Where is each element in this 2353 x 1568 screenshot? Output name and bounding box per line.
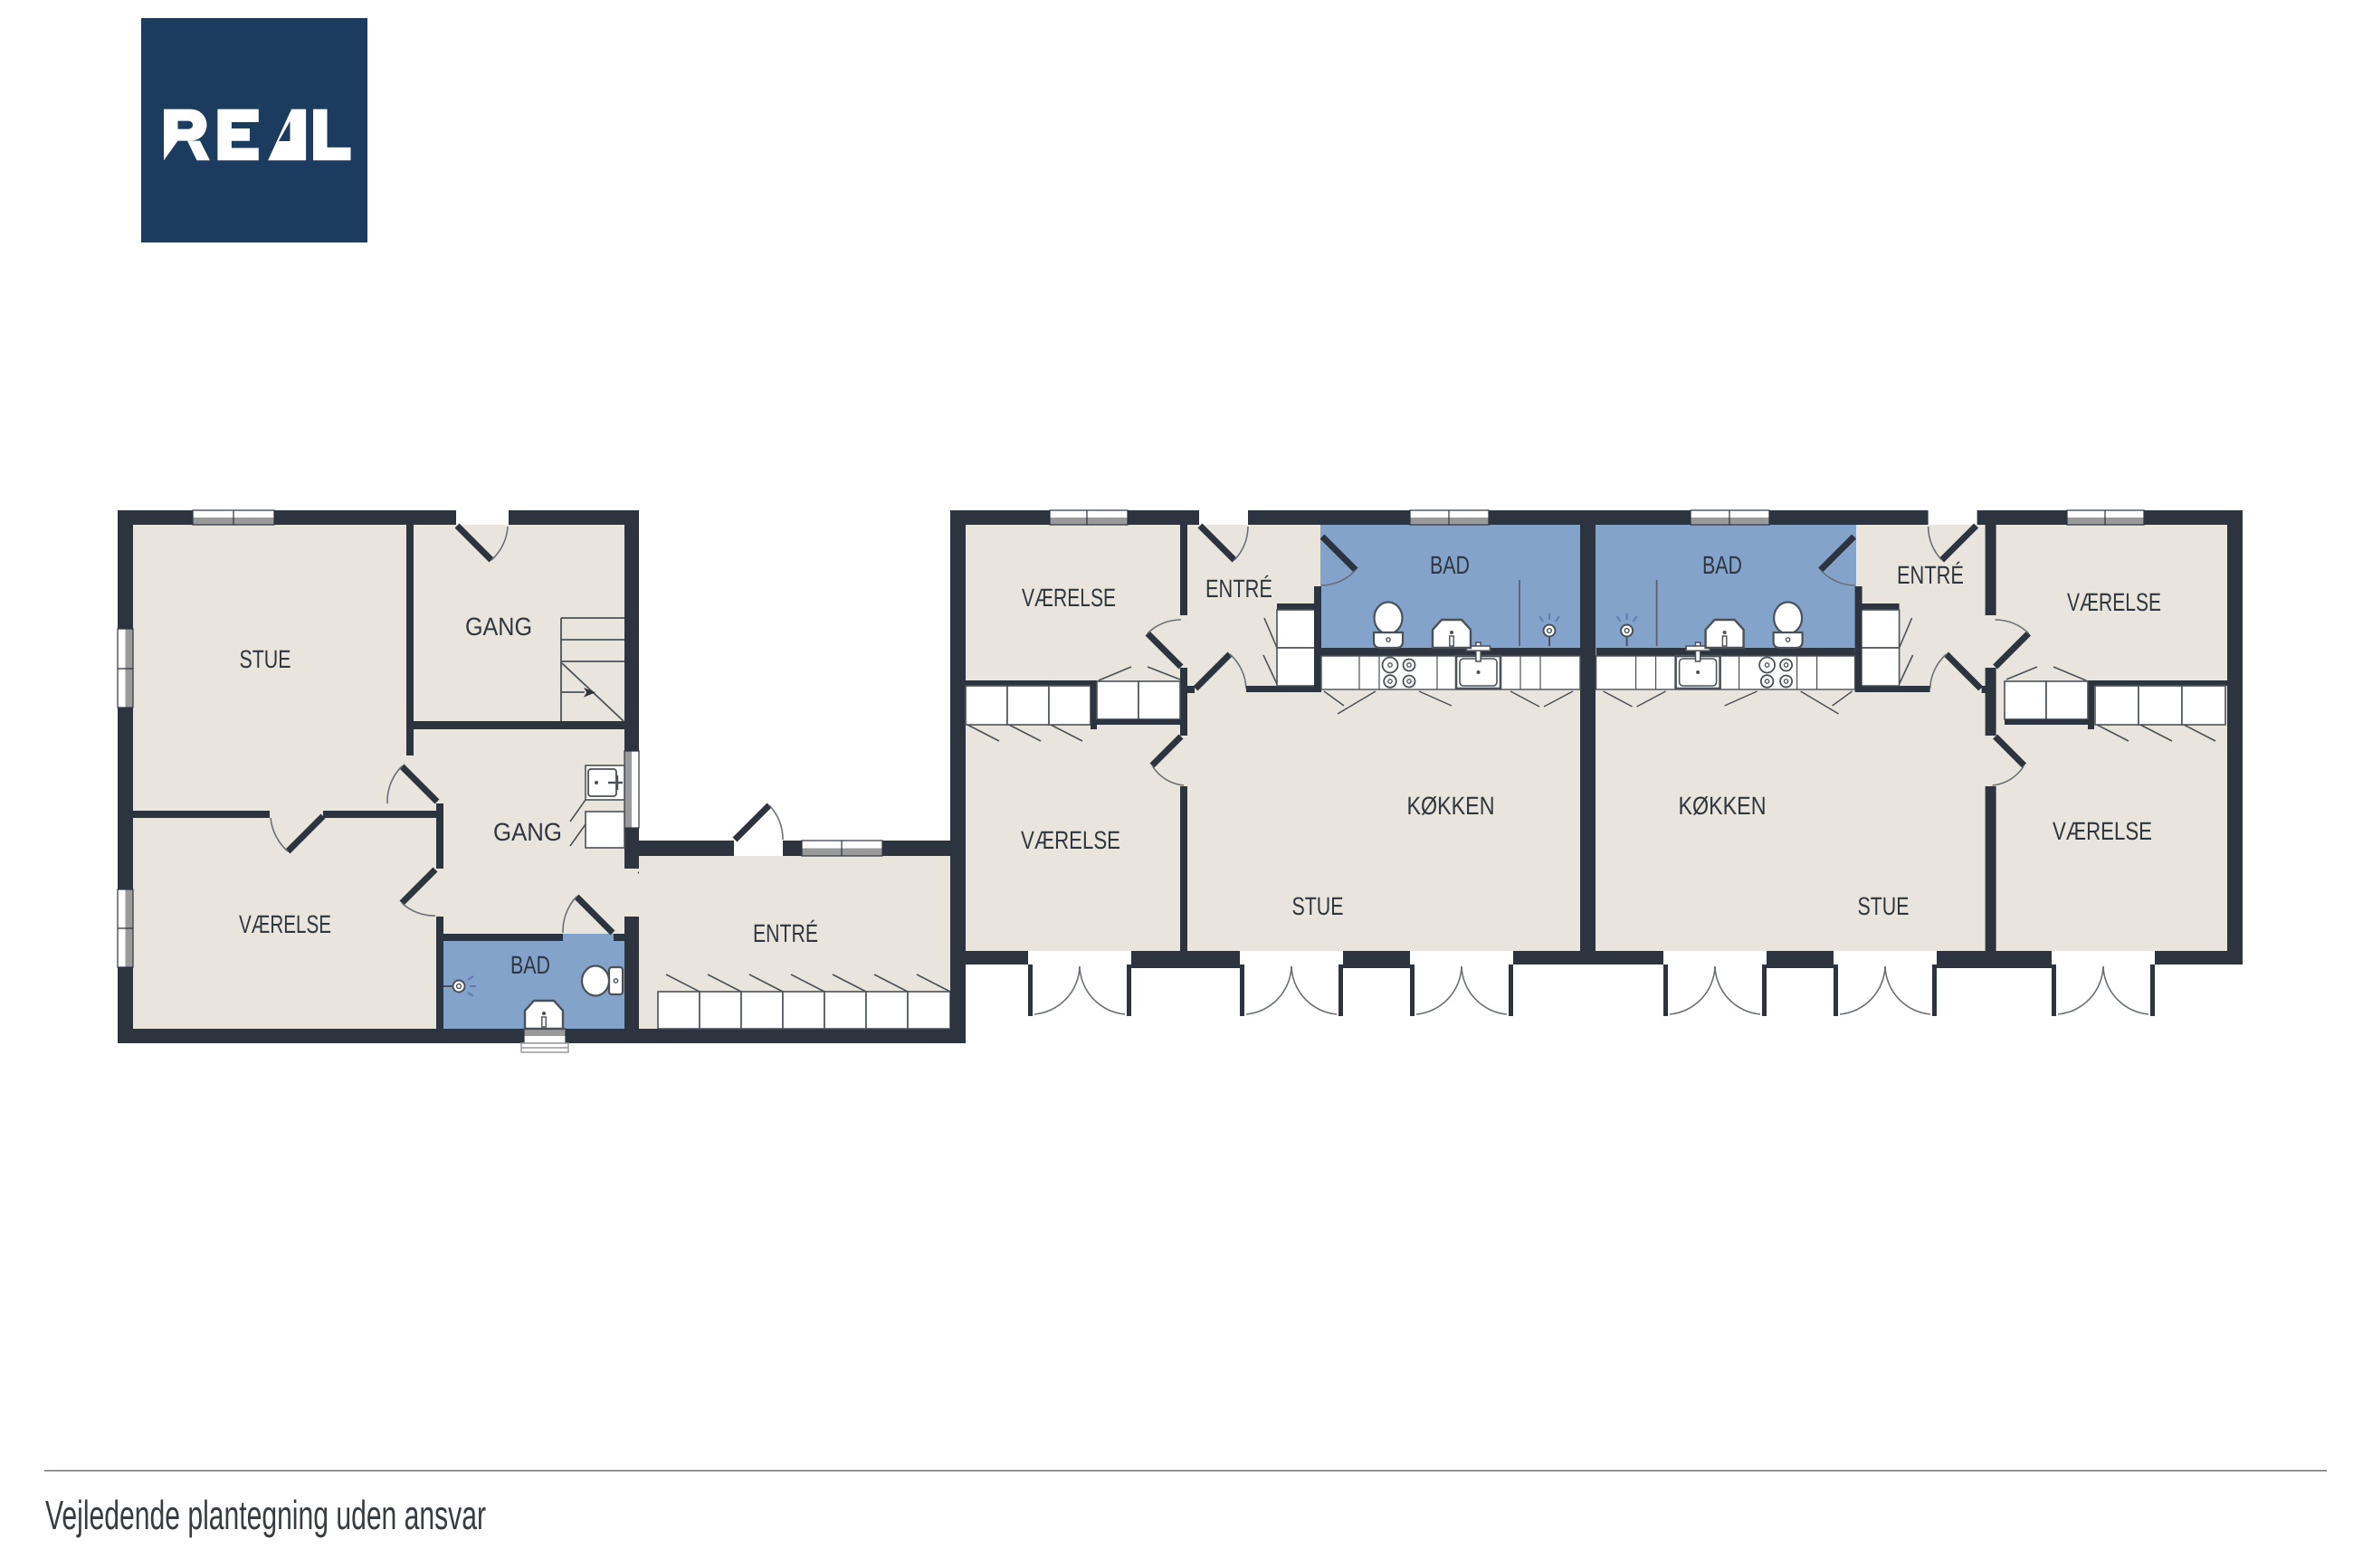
svg-text:GANG: GANG — [493, 818, 562, 846]
svg-text:BAD: BAD — [1430, 551, 1470, 579]
svg-text:GANG: GANG — [465, 613, 532, 641]
svg-text:Vejledende plantegning uden an: Vejledende plantegning uden ansvar — [45, 1492, 486, 1538]
svg-text:ENTRÉ: ENTRÉ — [1897, 561, 1964, 589]
svg-text:STUE: STUE — [240, 645, 291, 673]
svg-text:VÆRELSE: VÆRELSE — [2053, 817, 2152, 845]
svg-text:ENTRÉ: ENTRÉ — [1205, 575, 1272, 603]
svg-text:STUE: STUE — [1858, 892, 1910, 920]
svg-text:STUE: STUE — [1292, 892, 1344, 920]
svg-text:VÆRELSE: VÆRELSE — [1021, 826, 1120, 854]
svg-text:KØKKEN: KØKKEN — [1407, 792, 1495, 820]
svg-text:BAD: BAD — [1702, 551, 1742, 579]
svg-text:VÆRELSE: VÆRELSE — [239, 910, 331, 938]
svg-text:KØKKEN: KØKKEN — [1679, 792, 1767, 820]
svg-text:ENTRÉ: ENTRÉ — [753, 919, 818, 947]
svg-text:VÆRELSE: VÆRELSE — [2067, 588, 2161, 616]
svg-text:BAD: BAD — [510, 951, 550, 979]
svg-text:VÆRELSE: VÆRELSE — [1022, 584, 1116, 612]
